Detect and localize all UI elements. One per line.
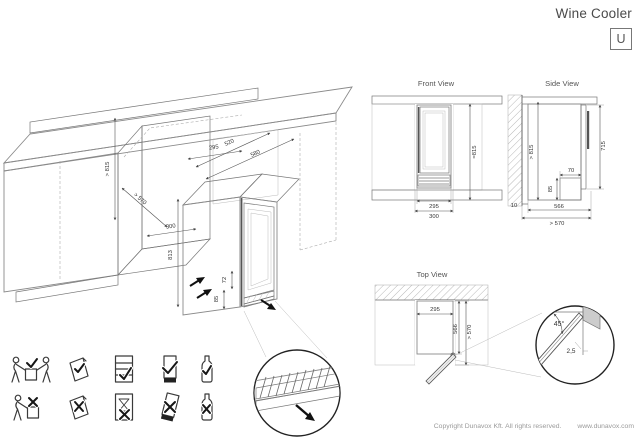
page-title: Wine Cooler: [556, 6, 632, 21]
pictogram-one-person-carry-icon: [8, 393, 56, 423]
dim-plinth-height-label: 72: [222, 277, 228, 283]
model-letter-badge: U: [610, 28, 632, 50]
front-view-drawing: Front View ≈815 295 300: [370, 76, 515, 224]
side-view-title: Side View: [545, 79, 579, 88]
pictogram-two-person-carry-icon: [8, 355, 56, 385]
dim-niche-width-label: 300: [166, 223, 176, 230]
dim-depth-inner-label: 520: [224, 138, 235, 148]
door-handle: [587, 111, 589, 149]
dim-niche-height-label: > 815: [529, 145, 535, 160]
dim-unit-width-label: 295: [209, 144, 219, 151]
floor-plinth-band: [372, 190, 502, 200]
niche-floor: [118, 239, 210, 275]
isometric-drawing: > 815 > 570 300 813 295 520 580 72 85: [0, 85, 352, 440]
dim-unit-height-label: 813: [168, 250, 174, 260]
dim-rear-gap-label: 10: [511, 203, 517, 209]
pictogram-bottle-tilted-icon: [199, 392, 215, 423]
footer: Copyright Dunavox Kft. All rights reserv…: [434, 423, 634, 430]
dim-unit-depth-label: 566: [554, 204, 564, 210]
pictogram-cabinet-hourglass-icon: [113, 392, 137, 423]
pictogram-transport-tilted-icon: [159, 392, 182, 423]
unit-top-face: [183, 174, 262, 205]
datasheet-page: Wine Cooler U: [0, 0, 640, 440]
dim-niche-height-label: > 815: [105, 162, 111, 177]
vent-compartment: [560, 178, 581, 200]
website-link: www.dunavox.com: [577, 423, 634, 430]
unit-side-face: [183, 197, 240, 315]
countertop: [522, 97, 597, 104]
dim-vent-height-label: 85: [214, 296, 220, 302]
dim-unit-width-label: 295: [429, 204, 439, 210]
door-angle-label: 45°: [554, 320, 565, 328]
side-view-drawing: Side View > 815 715 70 85 10 566 > 570: [505, 76, 640, 228]
door-glass-inner: [251, 213, 268, 286]
door-slab: [581, 105, 586, 189]
dim-height-label: ≈815: [472, 146, 478, 159]
pictogram-bottle-upright-icon: [199, 354, 215, 385]
dim-niche-depth-label: > 570: [550, 221, 565, 227]
top-view-title: Top View: [417, 270, 448, 279]
pictogram-panel-tilted-icon: [64, 393, 94, 423]
dim-depth-outer-label: 580: [250, 149, 261, 159]
door-frame: [244, 203, 274, 298]
niche: [415, 104, 453, 190]
wall-return-panel: [213, 130, 278, 204]
dim-unit-width-label: 295: [430, 307, 440, 313]
front-view-title: Front View: [418, 79, 455, 88]
detail-leader-2: [455, 360, 541, 377]
dim-vent-height-label: 85: [548, 186, 554, 192]
vent-detail-circle: [254, 350, 340, 436]
dim-door-height-label: 715: [601, 141, 607, 151]
door-glass: [248, 209, 271, 290]
rear-wall-hatch: [508, 95, 522, 206]
dim-niche-depth-label: > 570: [467, 325, 473, 340]
side-view-dimensions: > 815 715 70 85 10 566 > 570: [511, 102, 607, 227]
left-cabinet: [375, 300, 415, 365]
unit-body: [528, 104, 581, 200]
pictogram-transport-upright-icon: [159, 354, 182, 385]
detail-leader-1: [244, 311, 266, 357]
countertop-surface: [4, 87, 352, 163]
header: Wine Cooler U: [556, 6, 632, 50]
plinth: [16, 275, 118, 302]
base-cabinet-front: [4, 153, 118, 292]
pictogram-cabinet-loaded-icon: [113, 354, 137, 385]
dim-vent-depth-label: 70: [568, 168, 574, 174]
hidden-edges: [60, 115, 336, 280]
door-clearance-label: 2,5: [567, 348, 576, 355]
dim-unit-depth-label: 566: [453, 324, 459, 334]
rear-wall-hatch: [375, 285, 488, 300]
detail-leader-2: [275, 301, 327, 358]
left-cabinet-panel: [372, 104, 415, 190]
copyright-text: Copyright Dunavox Kft. All rights reserv…: [434, 423, 562, 430]
dim-niche-width-label: 300: [429, 214, 439, 220]
pictogram-panel-handling-icon: [64, 355, 94, 385]
countertop: [372, 96, 502, 104]
top-view-drawing: Top View 295 566 > 570: [370, 263, 640, 408]
backsplash: [30, 88, 258, 133]
dim-niche-depth-label: > 570: [132, 192, 147, 206]
